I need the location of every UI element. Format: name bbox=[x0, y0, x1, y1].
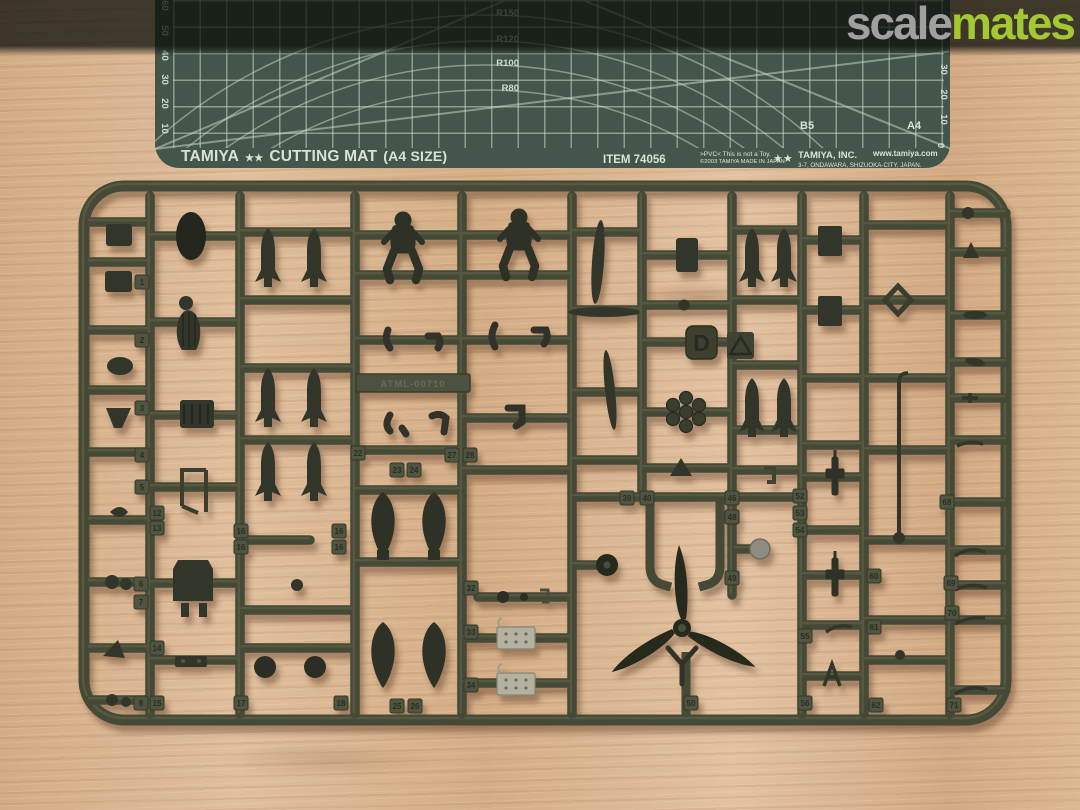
gate-tab-26: 26 bbox=[408, 699, 422, 713]
gate-tab-18: 18 bbox=[334, 696, 348, 710]
caution-triangle-tag bbox=[727, 332, 754, 359]
svg-text:3: 3 bbox=[140, 404, 145, 413]
svg-text:34: 34 bbox=[467, 681, 476, 690]
svg-text:46: 46 bbox=[728, 494, 737, 503]
pilot-figure bbox=[500, 209, 538, 277]
small-parts-column bbox=[103, 224, 133, 707]
box-part bbox=[818, 296, 842, 326]
svg-text:40: 40 bbox=[643, 494, 652, 503]
gate-tab-5: 5 bbox=[135, 480, 149, 494]
svg-text:5: 5 bbox=[140, 483, 145, 492]
svg-text:49: 49 bbox=[728, 574, 737, 583]
spinner-part bbox=[176, 212, 206, 260]
small-round-part bbox=[291, 579, 303, 591]
gate-tab-12: 12 bbox=[150, 506, 164, 520]
wheel-part bbox=[254, 656, 276, 678]
gate-tab-7: 7 bbox=[134, 595, 148, 609]
gate-tab-52: 52 bbox=[793, 489, 807, 503]
scalemates-watermark: scalemates bbox=[846, 0, 1074, 52]
box-part bbox=[818, 226, 842, 256]
pilot-figure bbox=[384, 212, 422, 280]
gate-tab-33: 33 bbox=[464, 625, 478, 639]
svg-text:16: 16 bbox=[335, 527, 344, 536]
svg-text:4: 4 bbox=[140, 451, 145, 460]
svg-text:52: 52 bbox=[796, 492, 805, 501]
gate-tab-8: 8 bbox=[134, 696, 148, 710]
svg-text:16: 16 bbox=[335, 543, 344, 552]
gate-tab-49: 49 bbox=[725, 571, 739, 585]
svg-text:28: 28 bbox=[466, 451, 475, 460]
gate-tab-46: 46 bbox=[725, 491, 739, 505]
exhaust-cluster-part bbox=[667, 392, 706, 433]
gate-tab-25: 25 bbox=[390, 699, 404, 713]
connector-part bbox=[175, 656, 207, 667]
gate-tab-14: 14 bbox=[150, 641, 164, 655]
bomb-rack-part bbox=[497, 618, 535, 649]
gate-tab-27: 27 bbox=[445, 448, 459, 462]
svg-text:8: 8 bbox=[139, 699, 144, 708]
watermark-scale: scale bbox=[846, 0, 951, 49]
gate-tab-4: 4 bbox=[135, 448, 149, 462]
svg-text:33: 33 bbox=[467, 628, 476, 637]
svg-text:24: 24 bbox=[410, 466, 419, 475]
gate-tab-69: 69 bbox=[944, 576, 958, 590]
gate-tab-3: 3 bbox=[135, 401, 149, 415]
svg-text:50: 50 bbox=[687, 699, 696, 708]
gate-tab-16: 16 bbox=[234, 540, 248, 554]
svg-text:1: 1 bbox=[140, 278, 145, 287]
svg-text:23: 23 bbox=[393, 466, 402, 475]
gate-tab-17: 17 bbox=[234, 696, 248, 710]
tail-wheel-part bbox=[596, 554, 618, 576]
gate-tab-40: 40 bbox=[640, 491, 654, 505]
gate-tab-32: 32 bbox=[464, 581, 478, 595]
svg-text:39: 39 bbox=[623, 494, 632, 503]
svg-text:48: 48 bbox=[728, 513, 737, 522]
svg-text:54: 54 bbox=[796, 526, 805, 535]
gate-tab-53: 53 bbox=[793, 506, 807, 520]
gate-tab-13: 13 bbox=[150, 521, 164, 535]
svg-text:70: 70 bbox=[948, 609, 957, 618]
small-round-part bbox=[679, 300, 690, 311]
svg-text:16: 16 bbox=[237, 543, 246, 552]
engine-part bbox=[180, 400, 214, 428]
gate-tab-54: 54 bbox=[793, 523, 807, 537]
disc-part bbox=[750, 539, 770, 559]
bomb-parts bbox=[371, 492, 445, 688]
gate-tab-23: 23 bbox=[390, 463, 404, 477]
gate-tab-56: 56 bbox=[798, 696, 812, 710]
svg-text:D: D bbox=[693, 330, 710, 356]
gate-tab-16: 16 bbox=[332, 524, 346, 538]
svg-text:56: 56 bbox=[801, 699, 810, 708]
gate-tab-16: 16 bbox=[332, 540, 346, 554]
gate-tab-15: 15 bbox=[150, 696, 164, 710]
gate-tab-22: 22 bbox=[351, 446, 365, 460]
gate-tab-2: 2 bbox=[135, 333, 149, 347]
gate-tab-61: 61 bbox=[867, 620, 881, 634]
gate-tab-62: 62 bbox=[869, 698, 883, 712]
gate-tab-55: 55 bbox=[798, 629, 812, 643]
svg-text:16: 16 bbox=[237, 527, 246, 536]
part-number-plate: ATML-00710 bbox=[356, 374, 470, 392]
svg-text:15: 15 bbox=[153, 699, 162, 708]
svg-text:22: 22 bbox=[354, 449, 363, 458]
svg-text:69: 69 bbox=[947, 579, 956, 588]
gate-tab-34: 34 bbox=[464, 678, 478, 692]
svg-text:25: 25 bbox=[393, 702, 402, 711]
cowl-part bbox=[177, 296, 200, 350]
svg-text:55: 55 bbox=[801, 632, 810, 641]
box-part bbox=[676, 238, 698, 272]
gate-tab-50: 50 bbox=[684, 696, 698, 710]
svg-text:12: 12 bbox=[153, 509, 162, 518]
svg-text:32: 32 bbox=[467, 584, 476, 593]
svg-text:60: 60 bbox=[870, 572, 879, 581]
svg-text:13: 13 bbox=[153, 524, 162, 533]
gate-tab-48: 48 bbox=[725, 510, 739, 524]
svg-text:18: 18 bbox=[337, 699, 346, 708]
svg-text:71: 71 bbox=[950, 701, 959, 710]
svg-text:53: 53 bbox=[796, 509, 805, 518]
svg-text:62: 62 bbox=[872, 701, 881, 710]
sprue-letter-tag: D bbox=[686, 326, 717, 359]
gate-tab-28: 28 bbox=[463, 448, 477, 462]
svg-text:27: 27 bbox=[448, 451, 457, 460]
svg-text:61: 61 bbox=[870, 623, 879, 632]
svg-text:6: 6 bbox=[139, 580, 144, 589]
watermark-mates: mates bbox=[951, 0, 1074, 49]
gate-tab-24: 24 bbox=[407, 463, 421, 477]
svg-text:68: 68 bbox=[943, 498, 952, 507]
gate-tab-16: 16 bbox=[234, 524, 248, 538]
photo-scene: R150R120R100R80 605040302010 3020100 B5 … bbox=[0, 0, 1080, 810]
gate-tab-6: 6 bbox=[134, 577, 148, 591]
svg-text:26: 26 bbox=[411, 702, 420, 711]
bomb-rack-part bbox=[497, 664, 535, 695]
gate-tab-71: 71 bbox=[947, 698, 961, 712]
machine-gun-part bbox=[826, 551, 844, 596]
svg-text:2: 2 bbox=[140, 336, 145, 345]
pilot-seat-part bbox=[173, 560, 213, 617]
gate-tab-1: 1 bbox=[135, 275, 149, 289]
antenna-mast-part bbox=[894, 373, 909, 544]
svg-text:14: 14 bbox=[153, 644, 162, 653]
machine-gun-part bbox=[826, 450, 844, 495]
gate-tab-39: 39 bbox=[620, 491, 634, 505]
svg-text:17: 17 bbox=[237, 699, 246, 708]
wheel-part bbox=[304, 656, 326, 678]
strut-parts bbox=[568, 220, 640, 431]
model-kit-sprue: ATML-00710 bbox=[0, 0, 1080, 810]
gate-tab-68: 68 bbox=[940, 495, 954, 509]
svg-text:ATML-00710: ATML-00710 bbox=[380, 379, 445, 390]
svg-text:7: 7 bbox=[139, 598, 144, 607]
gate-tab-70: 70 bbox=[945, 606, 959, 620]
small-round-part bbox=[895, 650, 905, 660]
gate-tab-60: 60 bbox=[867, 569, 881, 583]
